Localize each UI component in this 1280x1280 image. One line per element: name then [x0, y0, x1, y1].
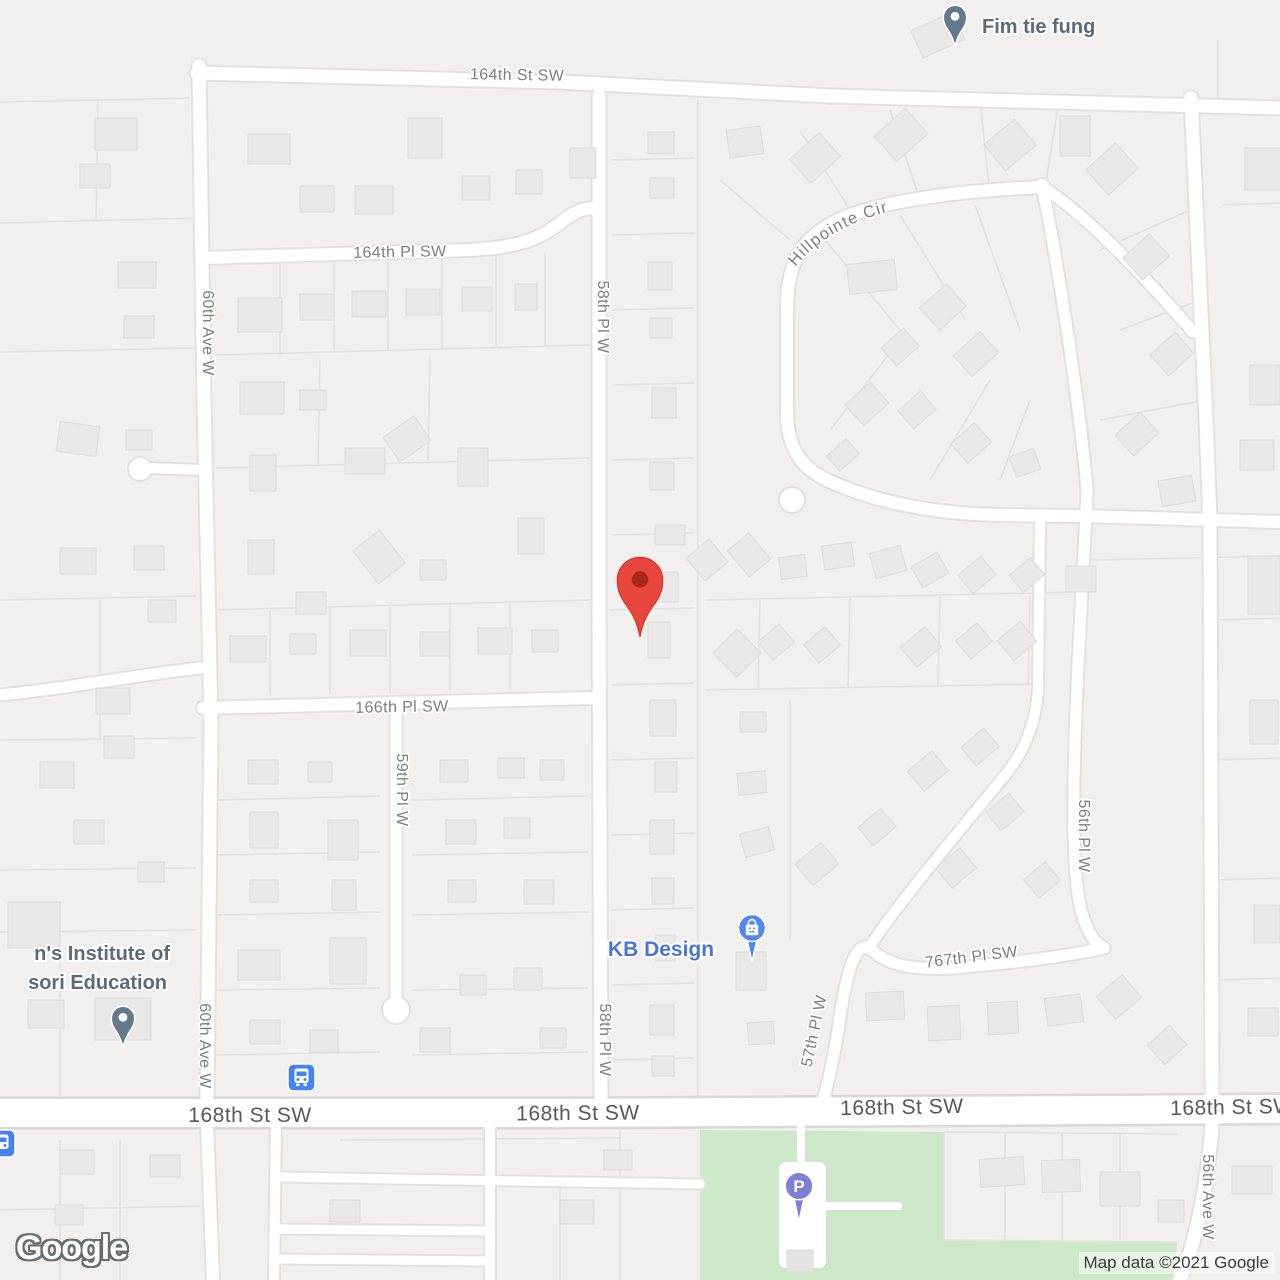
parcel-line — [412, 796, 588, 800]
building — [927, 1005, 961, 1041]
parcel-line — [216, 600, 590, 610]
map-svg[interactable]: 164th St SW164th Pl SW60th Ave W60th Ave… — [0, 0, 1280, 1280]
building — [1100, 1172, 1140, 1206]
building — [248, 760, 278, 784]
building — [987, 1001, 1019, 1035]
road — [1042, 186, 1087, 492]
building — [739, 827, 774, 858]
building — [1158, 1200, 1184, 1222]
building — [648, 132, 674, 154]
road — [197, 73, 1280, 108]
bus-stop-icon-edge[interactable] — [0, 1130, 15, 1157]
building — [290, 634, 316, 654]
road — [148, 468, 202, 470]
building — [804, 627, 841, 663]
building — [686, 539, 728, 581]
building — [104, 736, 134, 758]
parcel-line — [612, 158, 694, 160]
building — [1248, 556, 1280, 614]
parcel-line — [612, 983, 694, 985]
building — [900, 627, 941, 667]
building — [420, 632, 450, 656]
building — [1254, 905, 1280, 943]
road — [207, 1124, 213, 1280]
building — [1096, 975, 1141, 1020]
parcel-line — [318, 360, 320, 465]
building — [55, 1205, 83, 1225]
street-label: 164th St SW — [470, 66, 565, 85]
building — [650, 820, 674, 854]
parcel-line — [1215, 618, 1280, 620]
building — [28, 1000, 64, 1028]
building — [737, 771, 767, 796]
building — [956, 623, 993, 659]
parcel-line — [612, 908, 694, 910]
parcel-line — [0, 218, 196, 223]
institute-pin-icon[interactable] — [111, 1006, 134, 1048]
building — [961, 728, 999, 766]
road — [276, 1259, 490, 1261]
parcel-line — [612, 308, 694, 310]
building — [515, 284, 537, 310]
shop-label[interactable]: KB Design — [608, 938, 714, 961]
parcel-line — [1222, 203, 1280, 205]
building — [240, 382, 284, 414]
building — [350, 630, 386, 656]
building — [1086, 143, 1138, 195]
building — [300, 390, 326, 410]
park-building — [787, 1250, 813, 1272]
building — [498, 758, 524, 778]
building — [650, 318, 672, 338]
building — [238, 950, 280, 980]
building — [795, 842, 839, 885]
building — [604, 1150, 632, 1170]
building — [300, 294, 334, 320]
hillpointe-cir-label: Hillpointe Cir — [785, 198, 890, 269]
parcel-line — [612, 383, 694, 385]
parcel-line — [944, 1132, 1177, 1134]
street-label: 58th Pl W — [596, 1004, 613, 1077]
building — [518, 518, 544, 554]
building — [1041, 1159, 1080, 1192]
building — [462, 287, 492, 311]
building — [1250, 700, 1278, 744]
parcel-line — [612, 758, 694, 760]
parcel-line — [1100, 400, 1205, 420]
street-label: 168th St SW — [840, 1095, 964, 1120]
building — [250, 1020, 280, 1044]
building — [845, 382, 889, 426]
building — [330, 1200, 360, 1222]
building — [865, 991, 904, 1021]
building — [514, 968, 542, 990]
building — [80, 164, 110, 188]
map-attribution: Map data ©2021 Google — [1079, 1252, 1275, 1274]
road — [1080, 516, 1280, 522]
building — [408, 118, 442, 158]
building — [60, 548, 96, 574]
parcel-line — [706, 592, 1080, 600]
building — [570, 148, 596, 178]
building — [332, 880, 356, 910]
street-label: 60th Ave W — [196, 1003, 213, 1089]
building — [747, 1021, 774, 1045]
building — [984, 119, 1036, 171]
parcel-line — [216, 988, 380, 990]
building — [1115, 412, 1159, 456]
building — [979, 1156, 1025, 1187]
building — [911, 552, 949, 588]
building — [458, 448, 488, 486]
building — [134, 546, 164, 570]
building — [1150, 332, 1194, 376]
building — [650, 462, 674, 490]
building — [648, 622, 670, 658]
building — [789, 133, 840, 184]
building — [779, 554, 808, 579]
building — [446, 820, 476, 844]
parcel-line — [612, 458, 694, 460]
building — [150, 1155, 180, 1177]
parcel-line — [340, 1138, 620, 1140]
building — [958, 556, 996, 594]
building — [869, 545, 907, 578]
building — [1250, 365, 1280, 405]
parcel-line — [0, 348, 196, 352]
building — [1158, 475, 1196, 507]
building — [1066, 566, 1096, 592]
building — [560, 1200, 594, 1224]
building — [652, 1056, 674, 1076]
building — [300, 186, 334, 212]
building — [1248, 1008, 1278, 1036]
parcel-line — [216, 345, 590, 355]
parcel-line — [975, 205, 1020, 330]
street-label: 166th Pl SW — [355, 698, 449, 717]
building — [727, 533, 770, 577]
building — [448, 880, 476, 902]
building — [1060, 116, 1090, 156]
road — [276, 1229, 490, 1231]
building — [650, 700, 676, 736]
building — [383, 416, 431, 462]
building — [248, 134, 290, 164]
building — [56, 421, 100, 456]
building — [655, 525, 685, 545]
road — [1191, 98, 1212, 1100]
parcel-line — [216, 796, 380, 800]
building — [1245, 148, 1280, 190]
curved-street-label: Hillpointe Cir — [785, 198, 890, 269]
street-label: 56th Pl W — [1075, 800, 1092, 873]
building — [827, 439, 860, 471]
building — [758, 624, 795, 660]
building — [1009, 448, 1041, 478]
building — [95, 118, 137, 150]
building — [74, 820, 104, 844]
building — [138, 862, 164, 882]
building — [353, 530, 406, 584]
building — [345, 448, 385, 474]
building — [250, 812, 278, 848]
culdesac — [383, 997, 409, 1023]
building — [540, 760, 564, 780]
building — [953, 332, 998, 377]
building — [462, 176, 490, 200]
building — [650, 178, 674, 198]
institute-label-line2[interactable]: sori Education — [28, 972, 167, 994]
parcel-line — [720, 180, 790, 240]
building — [310, 1030, 338, 1052]
building — [420, 560, 446, 580]
parking-letter: P — [793, 1177, 804, 1196]
parcel-line — [0, 868, 196, 870]
building — [504, 818, 530, 838]
building — [1232, 1166, 1272, 1194]
parcel-line — [412, 912, 588, 915]
parcel-line — [412, 988, 588, 990]
street-label: 58th Pl W — [594, 281, 611, 354]
parcel-line — [1215, 758, 1280, 760]
building — [60, 1150, 94, 1174]
building — [524, 880, 554, 904]
building — [726, 126, 764, 158]
building — [308, 762, 332, 782]
building — [655, 762, 677, 792]
building — [516, 170, 542, 194]
culdesac — [780, 488, 804, 512]
building — [1024, 862, 1061, 898]
building — [230, 636, 266, 662]
poi-restaurant[interactable]: Fim tie fung — [943, 5, 1095, 47]
building — [440, 760, 468, 782]
building — [648, 262, 672, 290]
parcel-line — [0, 738, 196, 740]
building — [96, 688, 130, 714]
building — [650, 1005, 674, 1035]
parcel-line — [216, 1052, 380, 1055]
building — [1240, 440, 1274, 470]
parcel-line — [0, 596, 196, 600]
building — [652, 878, 674, 904]
building — [898, 391, 936, 429]
building — [250, 880, 278, 902]
parcel-line — [612, 233, 694, 235]
building — [858, 808, 896, 846]
building — [920, 284, 967, 330]
bus-stop-icon[interactable] — [288, 1064, 315, 1091]
building — [540, 1028, 566, 1048]
street-label: 168th St SW — [188, 1104, 311, 1127]
culdesac — [129, 458, 151, 480]
road — [599, 96, 601, 1104]
building — [126, 430, 152, 450]
building — [296, 592, 326, 614]
building — [997, 621, 1037, 660]
building — [1044, 994, 1084, 1027]
street-label: 168th St SW — [516, 1101, 640, 1125]
building — [420, 1028, 450, 1052]
parcel-line — [216, 912, 380, 915]
institute-label-line1[interactable]: n's Institute of — [34, 943, 170, 965]
parcel-line — [938, 596, 940, 686]
building — [250, 455, 276, 491]
building — [328, 820, 358, 860]
parcel-line — [1215, 978, 1280, 980]
building — [950, 423, 991, 464]
building — [847, 260, 898, 295]
parcel-line — [612, 683, 694, 685]
building — [713, 629, 761, 677]
building — [652, 388, 676, 418]
restaurant-label[interactable]: Fim tie fung — [982, 16, 1095, 38]
google-logo[interactable]: Google — [16, 1229, 127, 1268]
culdesac — [1035, 179, 1049, 193]
building — [238, 298, 282, 332]
parcel-line — [706, 684, 1040, 690]
building — [40, 762, 74, 788]
parcel-line — [1215, 878, 1280, 880]
building — [1147, 1025, 1187, 1064]
parcel-line — [428, 356, 430, 460]
building — [821, 542, 854, 570]
building — [8, 902, 60, 948]
svg-text:Hillpointe Cir: Hillpointe Cir — [785, 198, 890, 269]
map-canvas[interactable]: 164th St SW164th Pl SW60th Ave W60th Ave… — [0, 0, 1280, 1280]
road — [822, 947, 872, 1106]
street-label: 56th Ave W — [1199, 1154, 1216, 1240]
building — [352, 291, 386, 317]
building — [124, 316, 154, 338]
parcel-line — [848, 598, 850, 688]
building — [406, 289, 440, 315]
building — [881, 328, 919, 366]
parcel-line — [412, 852, 588, 855]
building — [330, 938, 366, 984]
building — [874, 108, 928, 161]
building — [740, 712, 766, 732]
building — [532, 630, 558, 652]
street-label: 164th Pl SW — [353, 243, 447, 262]
building — [478, 628, 512, 654]
building — [248, 540, 274, 574]
building — [118, 262, 156, 288]
building — [148, 600, 176, 622]
building — [907, 751, 948, 791]
street-label: 59th Pl W — [393, 754, 410, 827]
building — [355, 186, 393, 214]
parcel-line — [0, 1206, 200, 1210]
building — [460, 975, 486, 995]
street-label: 60th Ave W — [199, 290, 216, 376]
street-label: 168th St SW — [1170, 1095, 1280, 1120]
